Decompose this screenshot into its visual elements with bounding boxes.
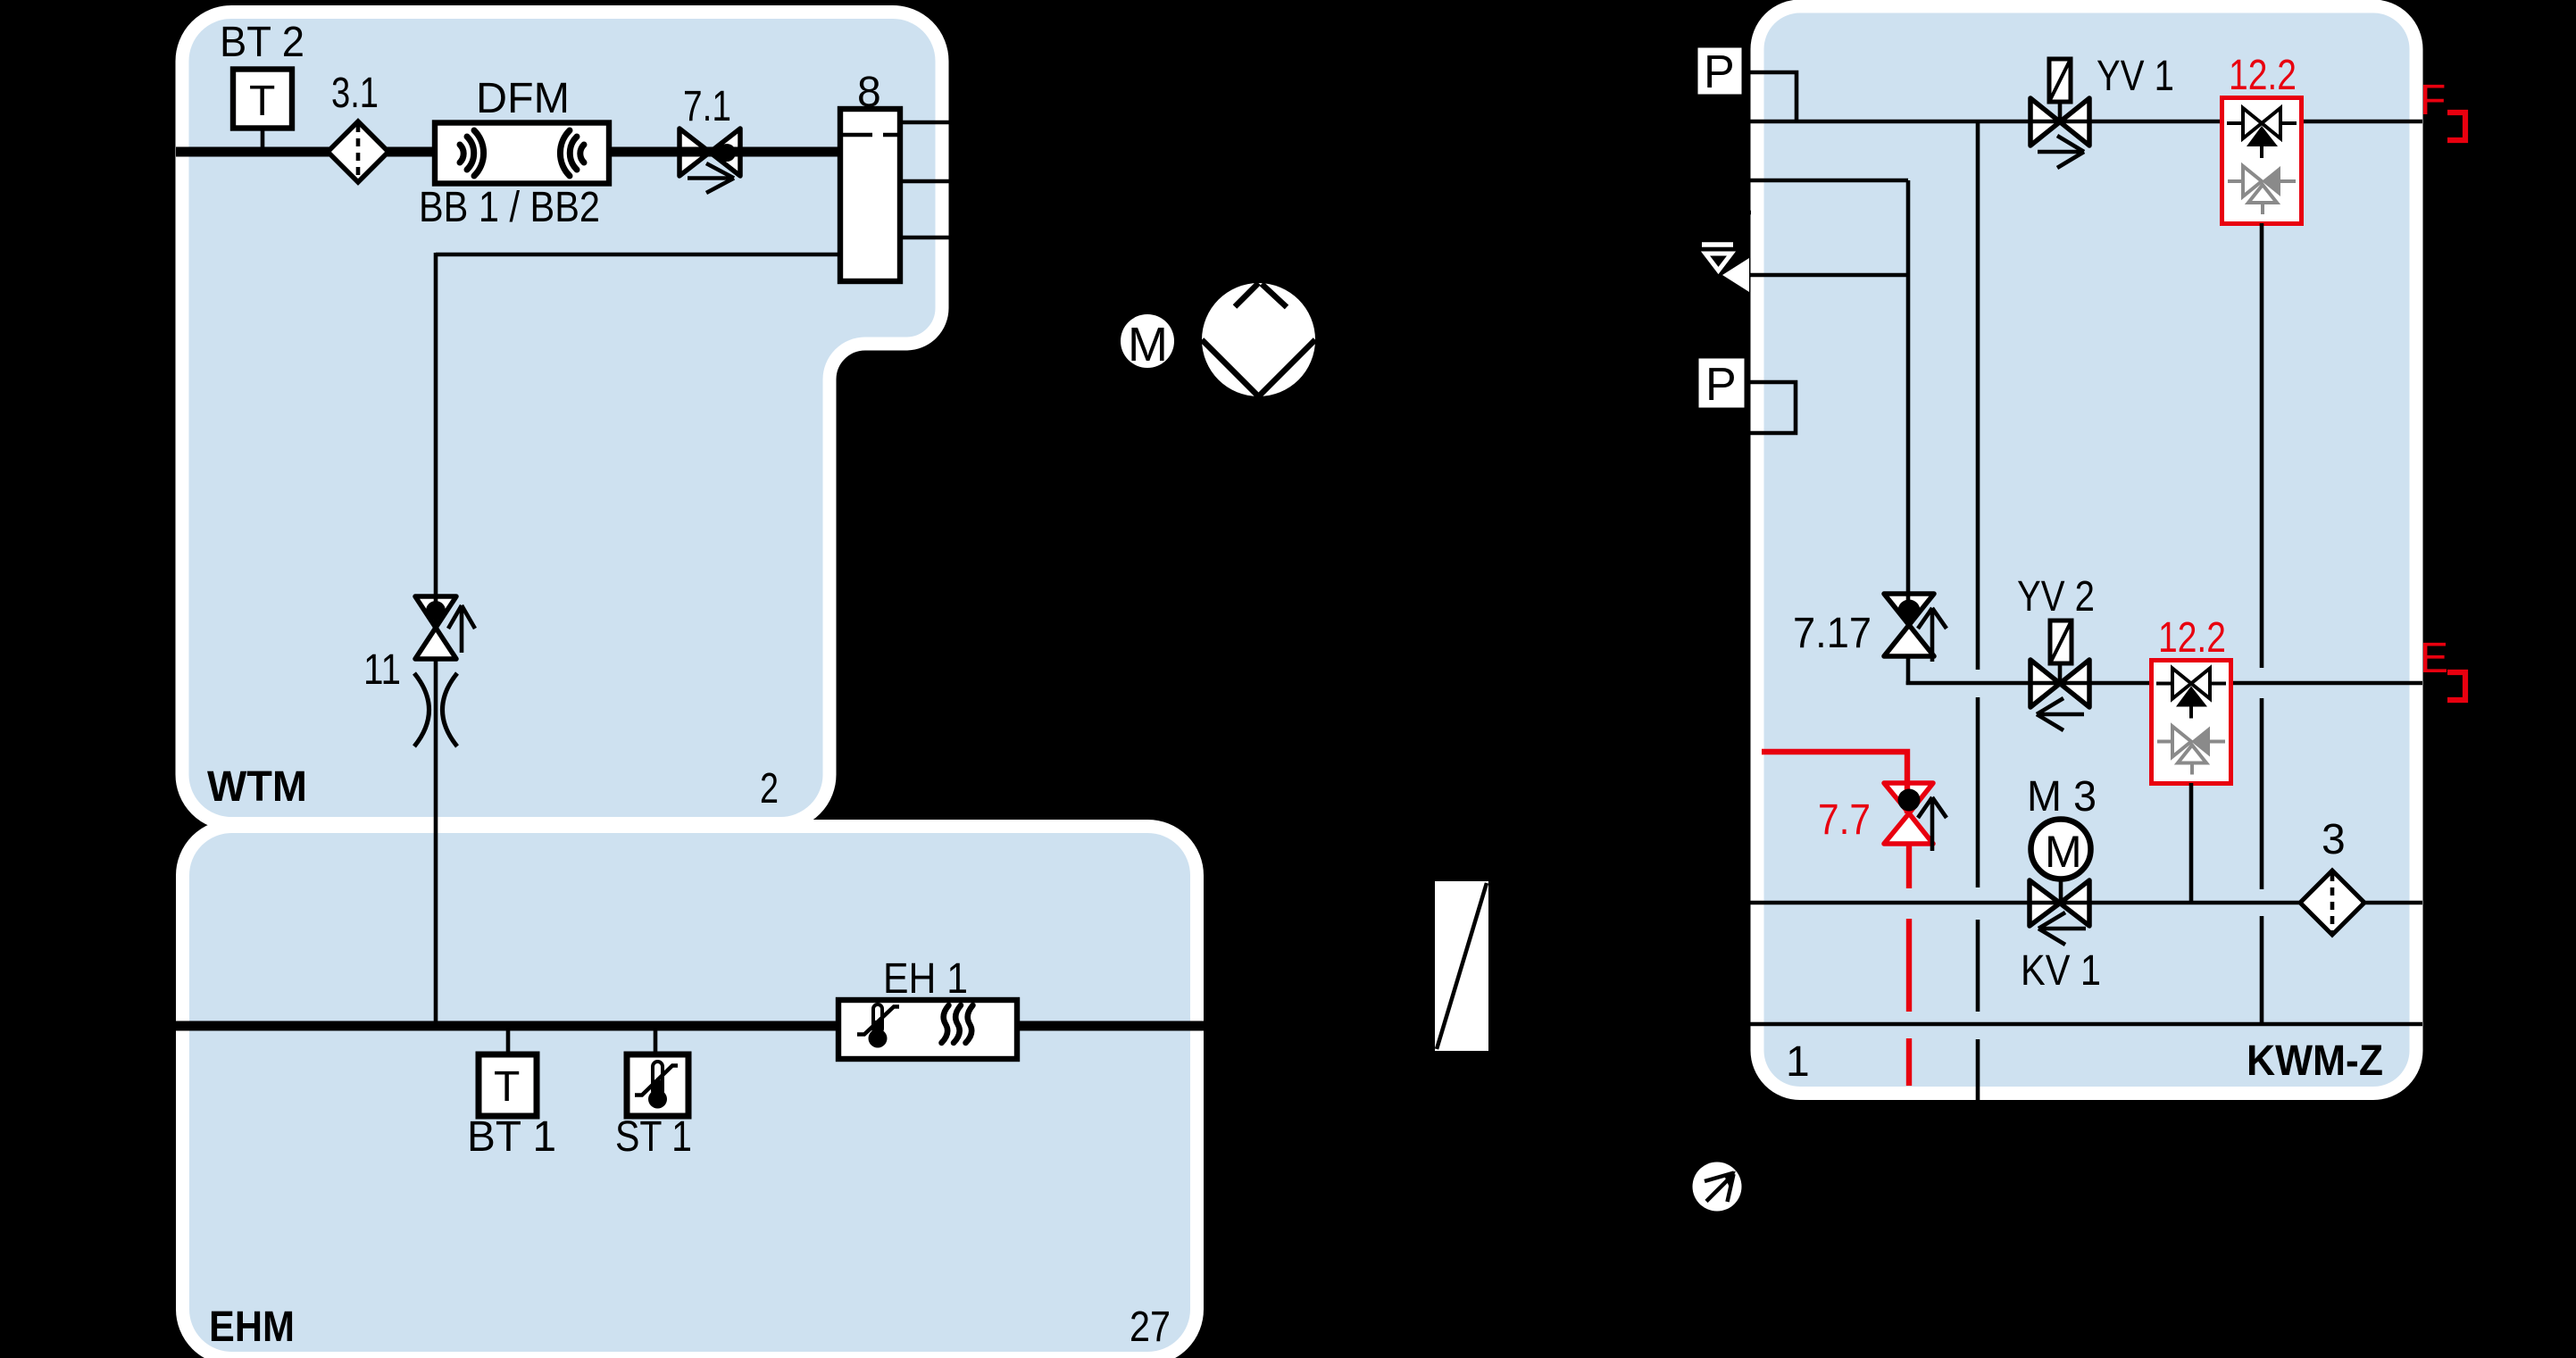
svg-text:27: 27 xyxy=(1130,1304,1171,1351)
svg-text:BB 1 / BB2: BB 1 / BB2 xyxy=(419,184,600,231)
svg-text:EHM: EHM xyxy=(209,1304,295,1351)
svg-text:11: 11 xyxy=(363,646,401,694)
svg-text:2: 2 xyxy=(760,765,779,812)
svg-text:7.7: 7.7 xyxy=(1818,796,1871,844)
svg-text:T: T xyxy=(494,1063,520,1111)
svg-text:M: M xyxy=(2045,827,2082,877)
svg-text:P: P xyxy=(1704,46,1735,98)
svg-text:3.1: 3.1 xyxy=(331,70,379,117)
svg-text:T: T xyxy=(249,78,275,125)
svg-text:1: 1 xyxy=(1786,1038,1810,1086)
svg-text:E: E xyxy=(2420,635,2448,682)
svg-text:F: F xyxy=(2420,77,2446,124)
svg-text:KV 1: KV 1 xyxy=(2021,947,2101,995)
svg-text:DFM: DFM xyxy=(476,75,570,122)
svg-text:YV 2: YV 2 xyxy=(2017,573,2095,621)
svg-text:BT 1: BT 1 xyxy=(467,1113,556,1161)
svg-text:YV 1: YV 1 xyxy=(2097,53,2174,100)
svg-text:M: M xyxy=(1128,318,1168,371)
svg-text:3: 3 xyxy=(2322,816,2346,863)
svg-text:12.2: 12.2 xyxy=(2229,52,2297,99)
svg-text:7.17: 7.17 xyxy=(1793,610,1872,657)
svg-text:12.2: 12.2 xyxy=(2158,614,2226,662)
svg-text:BT 2: BT 2 xyxy=(220,19,304,66)
svg-text:EH 1: EH 1 xyxy=(883,955,968,1003)
svg-text:8: 8 xyxy=(857,69,881,116)
svg-text:P: P xyxy=(1705,359,1737,411)
svg-text:WTM: WTM xyxy=(207,763,307,811)
svg-text:KWM-Z: KWM-Z xyxy=(2247,1037,2383,1085)
svg-text:ST 1: ST 1 xyxy=(615,1113,692,1161)
svg-text:M 3: M 3 xyxy=(2027,773,2097,821)
svg-text:7.1: 7.1 xyxy=(683,83,731,130)
